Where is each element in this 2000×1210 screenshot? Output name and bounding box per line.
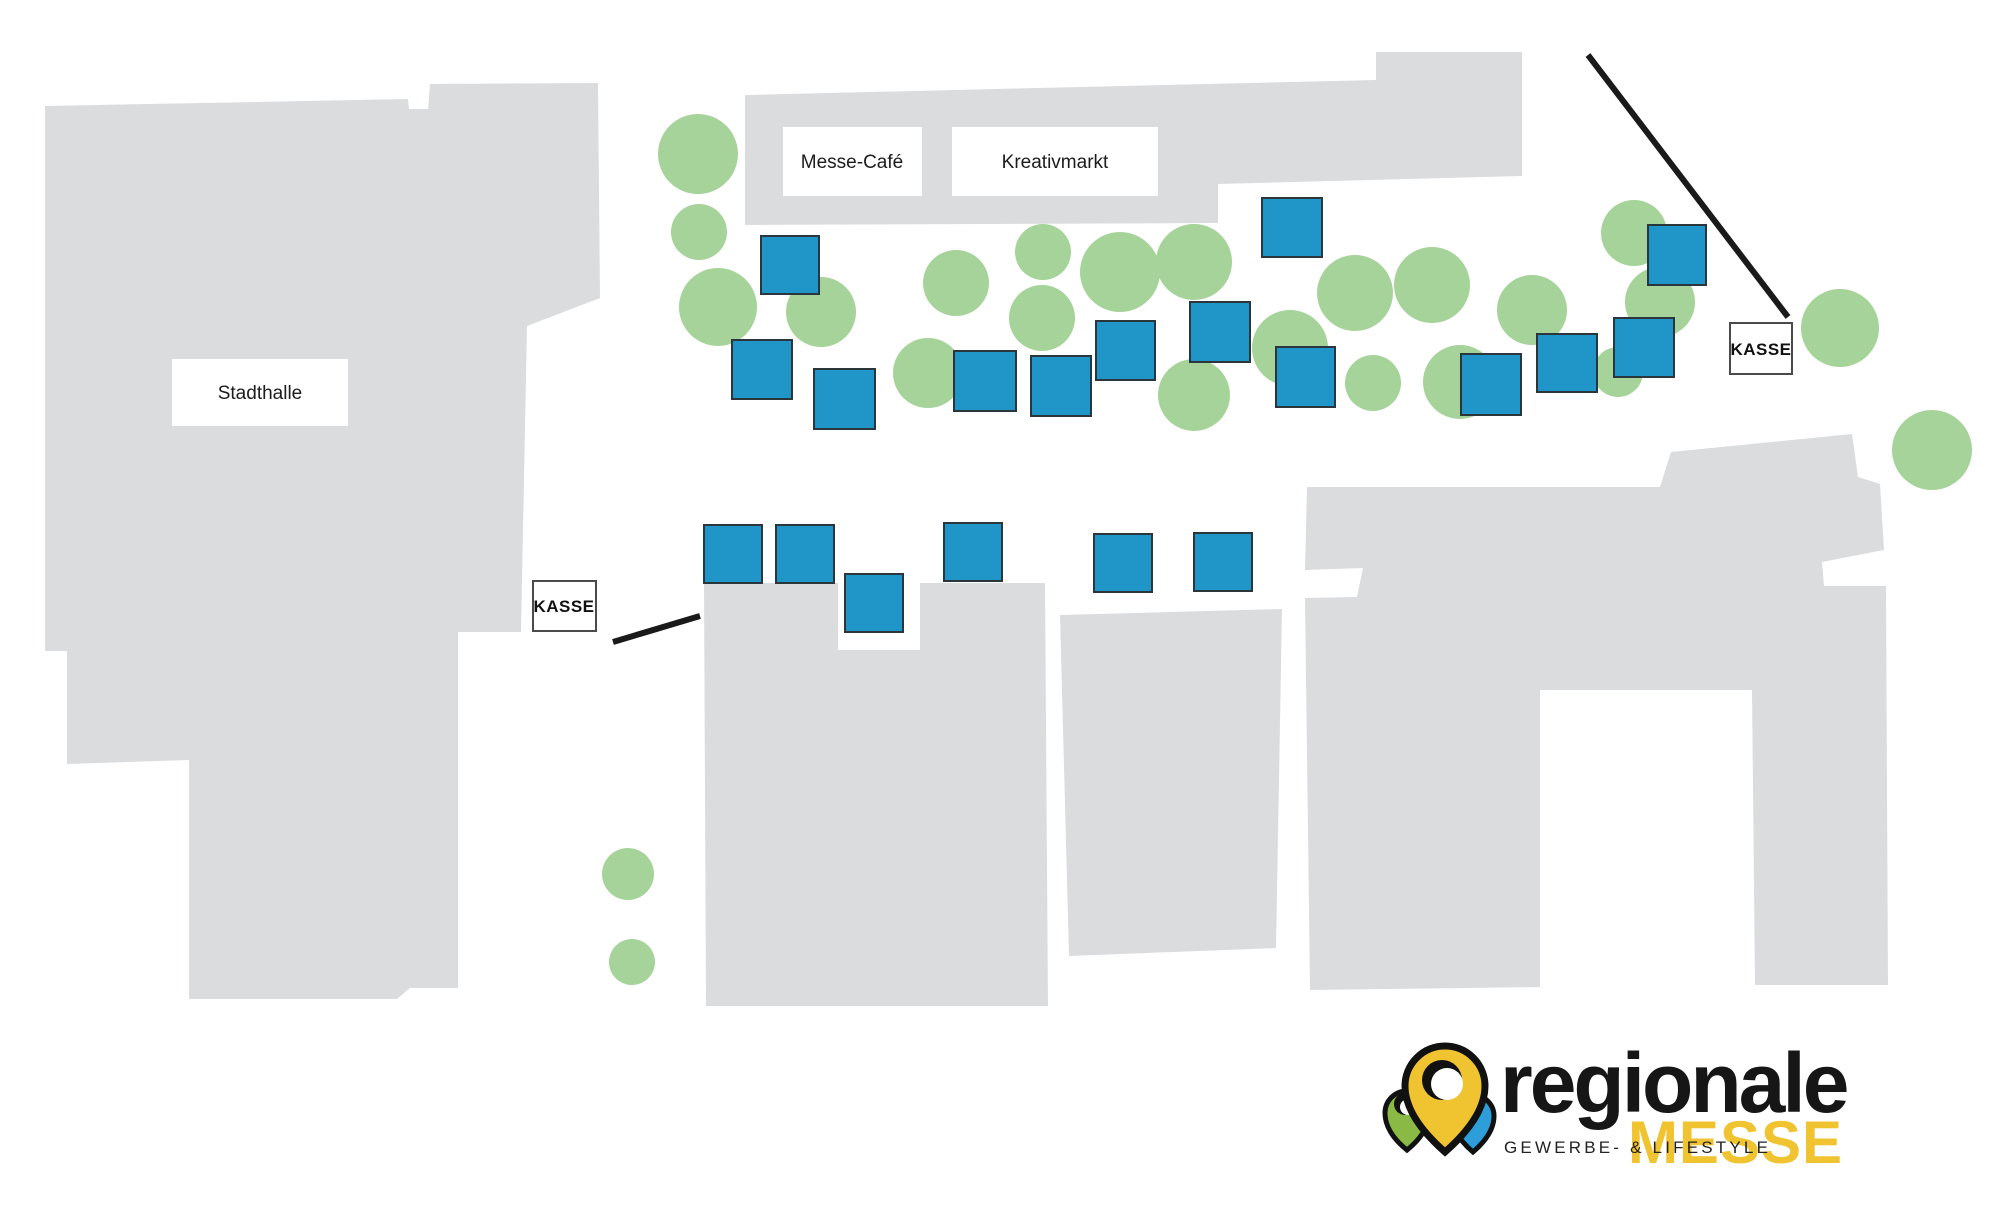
booth [1648, 225, 1706, 285]
kasse-right: KASSE [1730, 323, 1792, 374]
booth [1262, 198, 1322, 257]
booth [1614, 318, 1674, 377]
tree [1345, 355, 1401, 411]
booth [1461, 354, 1521, 415]
tree [1158, 359, 1230, 431]
entrance-line [613, 616, 700, 642]
label-text-stadthalle: Stadthalle [218, 383, 303, 404]
tree [1156, 224, 1232, 300]
site-map-canvas: Stadthalle Messe-Café Kreativmarkt KASSE… [0, 0, 2000, 1210]
logo-regionale-messe: regionale MESSE GEWERBE- & LIFESTYLE [1385, 1036, 1847, 1176]
booth [1094, 534, 1152, 592]
booth [761, 236, 819, 294]
label-text-messe-cafe: Messe-Café [801, 152, 903, 173]
building-mid-center [1060, 609, 1282, 956]
tree [923, 250, 989, 316]
booth [1537, 334, 1597, 392]
booth [1276, 347, 1335, 407]
tree [893, 338, 963, 408]
tree [679, 268, 757, 346]
site-map: Stadthalle Messe-Café Kreativmarkt KASSE… [0, 0, 2000, 1210]
label-kreativmarkt: Kreativmarkt [952, 127, 1158, 196]
booth [1031, 356, 1091, 416]
tree [1317, 255, 1393, 331]
tree [658, 114, 738, 194]
building-mid-left [704, 583, 1048, 1006]
booth [1194, 533, 1252, 591]
kasse-left: KASSE [533, 581, 596, 631]
tree [1080, 232, 1160, 312]
booth [1096, 321, 1155, 380]
booth [1190, 302, 1250, 362]
label-messe-cafe: Messe-Café [783, 127, 922, 196]
tree [1801, 289, 1879, 367]
booth [776, 525, 834, 583]
kasse-right-text: KASSE [1730, 340, 1791, 359]
booth [814, 369, 875, 429]
tree [1394, 247, 1470, 323]
tree [1009, 285, 1075, 351]
tree [1892, 410, 1972, 490]
booth [954, 351, 1016, 411]
booth [845, 574, 903, 632]
booth [704, 525, 762, 583]
tree [609, 939, 655, 985]
booth [944, 523, 1002, 581]
kasse-left-text: KASSE [533, 597, 594, 616]
booth [732, 340, 792, 399]
label-stadthalle: Stadthalle [172, 359, 348, 426]
building-right-complex [1305, 434, 1888, 990]
tree [671, 204, 727, 260]
logo-tagline-text: GEWERBE- & LIFESTYLE [1504, 1138, 1771, 1157]
building-stadthalle [45, 83, 600, 999]
label-text-kreativmarkt: Kreativmarkt [1002, 152, 1109, 173]
tree [602, 848, 654, 900]
tree [1015, 224, 1071, 280]
